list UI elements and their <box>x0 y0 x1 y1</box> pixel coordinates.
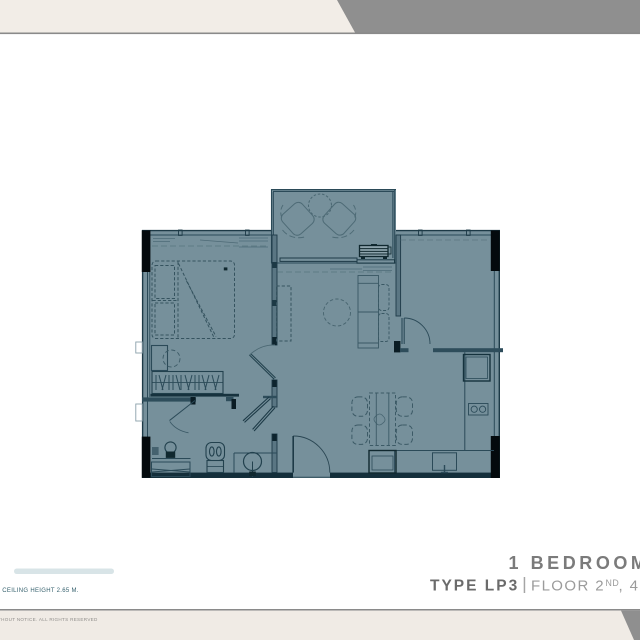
svg-text:ND: ND <box>606 578 620 588</box>
svg-text:THOUT NOTICE. ALL RIGHTS RESER: THOUT NOTICE. ALL RIGHTS RESERVED <box>0 617 98 622</box>
svg-text:FLOOR 2: FLOOR 2 <box>531 578 605 595</box>
svg-text:TYPE LP3: TYPE LP3 <box>430 578 519 595</box>
svg-text:1 BEDROOM: 1 BEDROOM <box>509 553 640 573</box>
svg-text:, 4: , 4 <box>619 578 640 595</box>
svg-text:- CEILING HEIGHT 2.65 M.: - CEILING HEIGHT 2.65 M. <box>0 588 79 594</box>
